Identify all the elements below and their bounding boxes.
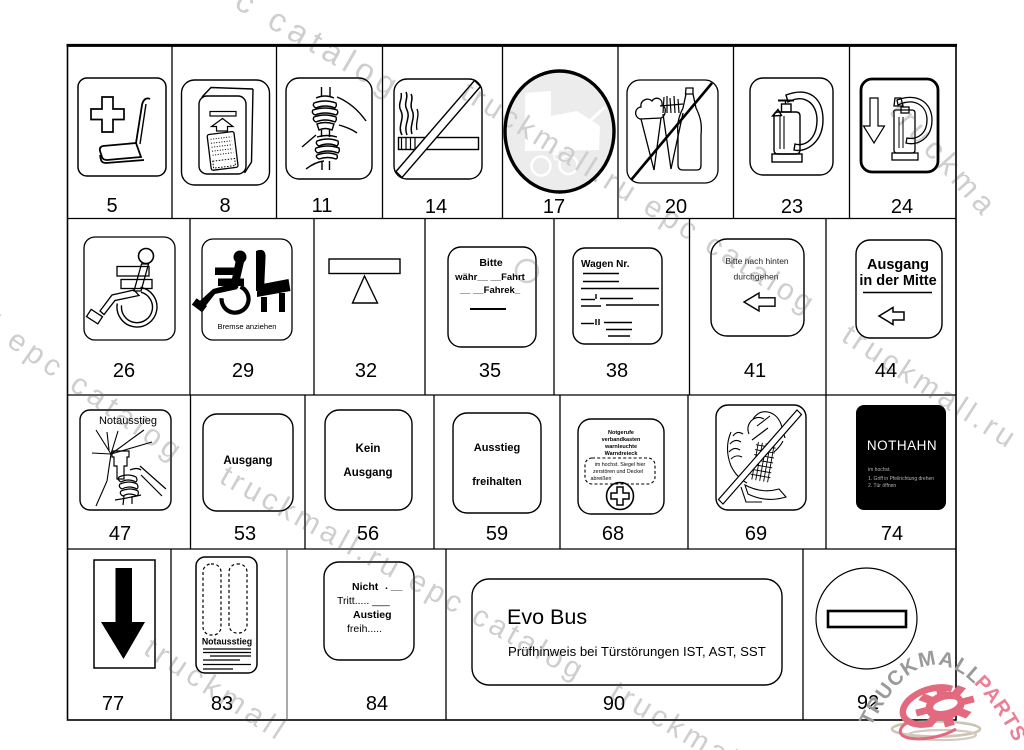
svg-text:8: 8 xyxy=(219,195,230,217)
svg-text:68: 68 xyxy=(602,523,624,545)
svg-text:in der Mitte: in der Mitte xyxy=(859,273,936,289)
svg-text:PARTS: PARTS xyxy=(970,671,1024,746)
svg-text:Bremse anziehen: Bremse anziehen xyxy=(217,322,276,331)
svg-text:NOTHAHN: NOTHAHN xyxy=(867,438,937,453)
svg-text:24: 24 xyxy=(891,196,913,218)
svg-text:26: 26 xyxy=(113,360,135,382)
svg-text:17: 17 xyxy=(543,196,565,218)
svg-text:47: 47 xyxy=(109,523,131,545)
svg-text:__ __Fahrek_: __ __Fahrek_ xyxy=(459,285,521,296)
svg-text:truckmall.ru epc catalog: truckmall.ru epc catalog xyxy=(215,459,592,688)
svg-text:41: 41 xyxy=(744,360,766,382)
svg-text:l epc catalog: l epc catalog xyxy=(0,309,191,470)
svg-text:Ausgang: Ausgang xyxy=(867,257,929,273)
svg-text:Wagen Nr.: Wagen Nr. xyxy=(581,259,630,270)
svg-text:2. Tür öffnen: 2. Tür öffnen xyxy=(868,483,896,489)
svg-text:Ausgang: Ausgang xyxy=(343,467,392,479)
svg-text:Notgerufe: Notgerufe xyxy=(608,430,634,436)
svg-text:74: 74 xyxy=(881,523,903,545)
svg-text:1. Griff in Pfeilrichtung dreh: 1. Griff in Pfeilrichtung drehen xyxy=(868,476,934,482)
svg-text:29: 29 xyxy=(232,360,254,382)
svg-text:freihalten: freihalten xyxy=(472,476,522,488)
svg-text:38: 38 xyxy=(606,360,628,382)
svg-text:Ausstieg: Ausstieg xyxy=(474,442,520,454)
svg-text:Notausstieg: Notausstieg xyxy=(202,637,252,647)
svg-text:im hochst.: im hochst. xyxy=(868,467,891,473)
svg-text:Warndreieck: Warndreieck xyxy=(605,451,639,457)
svg-text:84: 84 xyxy=(366,693,388,715)
svg-text:14: 14 xyxy=(425,196,447,218)
svg-text:77: 77 xyxy=(102,693,124,715)
svg-text:59: 59 xyxy=(486,523,508,545)
svg-text:Bitte: Bitte xyxy=(479,257,502,269)
svg-text:Austieg: Austieg xyxy=(353,609,392,621)
svg-text:truckmall.ru: truckmall.ru xyxy=(604,675,795,750)
svg-text:Tritt..... ___: Tritt..... ___ xyxy=(337,595,390,607)
svg-text:warnleuchte: warnleuchte xyxy=(604,444,637,450)
svg-text:32: 32 xyxy=(355,360,377,382)
svg-text:69: 69 xyxy=(745,523,767,545)
svg-text:5: 5 xyxy=(106,195,117,217)
svg-text:verbandkasten: verbandkasten xyxy=(602,437,641,443)
svg-text:53: 53 xyxy=(234,523,256,545)
svg-text:23: 23 xyxy=(781,196,803,218)
svg-text:35: 35 xyxy=(479,360,501,382)
svg-text:abreißen: abreißen xyxy=(591,476,612,482)
svg-text:zerstören und Deckel: zerstören und Deckel xyxy=(593,469,643,475)
svg-text:Nicht: Nicht xyxy=(352,581,379,593)
svg-text:freih.....: freih..... xyxy=(347,623,382,635)
svg-text:im hochst. Siegel hier: im hochst. Siegel hier xyxy=(595,462,646,468)
svg-text:währ__ __Fahrt: währ__ __Fahrt xyxy=(454,272,526,283)
svg-text:11: 11 xyxy=(312,195,333,217)
svg-text:Kein: Kein xyxy=(356,443,381,455)
